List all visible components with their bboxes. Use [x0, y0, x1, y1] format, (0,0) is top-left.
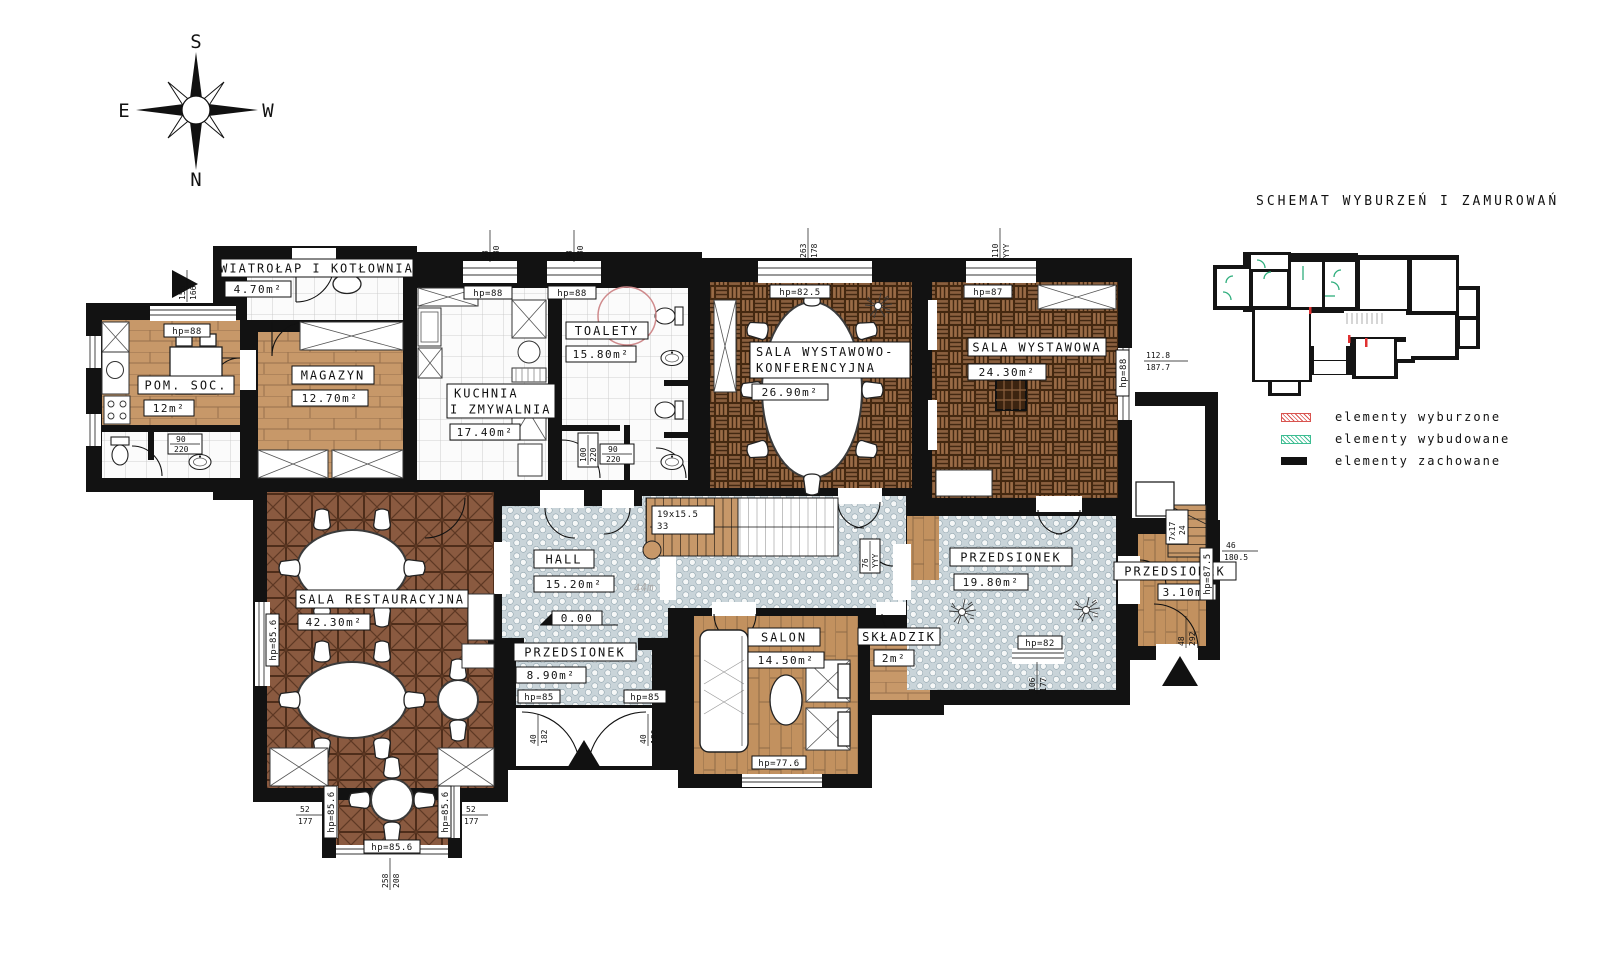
- room-name: SALA RESTAURACYJNA: [299, 593, 465, 607]
- dim-label: 76YYY: [860, 539, 880, 573]
- wc-icon: [655, 401, 683, 419]
- svg-text:180: 180: [492, 245, 501, 260]
- hp-label: hp=85: [630, 693, 660, 703]
- hp-label: hp=88: [1119, 358, 1129, 388]
- svg-text:166: 166: [189, 285, 198, 300]
- hp-label: hp=88: [473, 289, 503, 299]
- svg-text:100: 100: [579, 447, 588, 462]
- sink-icon: [189, 455, 211, 470]
- mini-plan: [1213, 252, 1480, 396]
- svg-text:208: 208: [392, 873, 401, 888]
- room-area: 26.90m²: [762, 386, 819, 399]
- handwritten-note: 44m: [633, 581, 654, 595]
- dim-label: 52177: [296, 805, 322, 826]
- room-name: WIATROŁAP I KOTŁOWNIA: [220, 262, 414, 276]
- level-value: 0.00: [561, 612, 594, 625]
- compass-center: [182, 96, 210, 124]
- svg-text:46: 46: [1226, 541, 1236, 550]
- room-area: 14.50m²: [758, 654, 815, 667]
- stairs-steps: 33: [657, 522, 669, 532]
- wc-icon: [655, 307, 683, 325]
- stairs-dim: 7x17: [1168, 522, 1177, 541]
- hp-label: hp=85.6: [327, 791, 337, 832]
- compass-letter-n: N: [190, 169, 201, 191]
- hp-label: hp=85.6: [269, 619, 279, 660]
- svg-text:263: 263: [799, 243, 808, 258]
- room-area: 19.80m²: [963, 576, 1020, 589]
- svg-text:178: 178: [810, 243, 819, 258]
- dim-label: 263178: [799, 228, 819, 260]
- room-name: SALA WYSTAWOWO-: [756, 345, 894, 359]
- room-name: TOALETY: [575, 324, 640, 338]
- dim-label: 110YYY: [991, 228, 1011, 260]
- svg-text:52: 52: [300, 805, 310, 814]
- svg-text:182: 182: [540, 729, 549, 744]
- room-name: SALA WYSTAWOWA: [972, 341, 1101, 355]
- dim-label: 90220: [168, 434, 202, 454]
- svg-text:110: 110: [991, 243, 1000, 258]
- sink-icon: [661, 455, 683, 470]
- svg-text:98: 98: [481, 250, 490, 260]
- room-area: 42.30m²: [306, 616, 363, 629]
- room-area: 24.30m²: [979, 366, 1036, 379]
- kitchenette-icon: [102, 322, 130, 424]
- room-name: HALL: [546, 553, 583, 567]
- svg-text:220: 220: [174, 445, 189, 454]
- dim-label: 100220: [578, 433, 598, 467]
- room-name: I ZMYWALNIA: [450, 403, 551, 417]
- room-area: 12.70m²: [302, 392, 359, 405]
- svg-text:220: 220: [606, 455, 621, 464]
- svg-text:177: 177: [464, 817, 479, 826]
- room-name: SALON: [761, 631, 807, 645]
- svg-text:156: 156: [178, 285, 187, 300]
- room-name: PRZEDSIONEK: [960, 551, 1061, 565]
- hp-label: hp=82.5: [779, 288, 820, 298]
- svg-text:52: 52: [466, 805, 476, 814]
- svg-text:180.5: 180.5: [1224, 553, 1248, 562]
- compass-letter-w: W: [262, 100, 274, 122]
- stairs-label: 7x17 24: [1166, 510, 1188, 544]
- room-name: PRZEDSIONEK: [524, 646, 625, 660]
- svg-text:180: 180: [576, 245, 585, 260]
- svg-text:76: 76: [861, 558, 870, 568]
- svg-text:106: 106: [1028, 677, 1037, 692]
- svg-text:YYY: YYY: [871, 553, 880, 568]
- svg-text:40: 40: [529, 734, 538, 744]
- room-name: KUCHNIA: [454, 387, 519, 401]
- sofa-icon: [700, 630, 748, 752]
- hp-label: hp=85: [524, 693, 554, 703]
- stairs-dim: 19x15.5: [657, 510, 698, 520]
- hp-label: hp=85.6: [441, 791, 451, 832]
- svg-text:YYY: YYY: [1002, 243, 1011, 258]
- svg-text:177: 177: [1039, 677, 1048, 692]
- room-area: 4.70m²: [234, 283, 283, 296]
- svg-text:292: 292: [1188, 631, 1197, 646]
- dim-label: 112.8187.7: [1144, 351, 1188, 372]
- sink-icon: [661, 351, 683, 366]
- room-name: KONFERENCYJNA: [756, 361, 876, 375]
- svg-text:90: 90: [608, 445, 618, 454]
- svg-text:112.8: 112.8: [1146, 351, 1170, 360]
- room-name: MAGAZYN: [301, 369, 366, 383]
- hp-label: hp=77.6: [758, 759, 799, 769]
- armchair-icon: [806, 708, 850, 750]
- hp-label: hp=85.6: [371, 843, 412, 853]
- compass-rose: S N E W: [118, 31, 274, 191]
- room-area: 8.90m²: [527, 669, 576, 682]
- svg-text:98: 98: [565, 250, 574, 260]
- dim-label: 90220: [600, 444, 634, 464]
- hp-label: hp=88: [557, 289, 587, 299]
- room-area: 12m²: [153, 402, 186, 415]
- room-area: 2m²: [882, 652, 906, 665]
- entrance-arrow-icon: [1162, 656, 1198, 686]
- svg-text:187.7: 187.7: [1146, 363, 1170, 372]
- wc-icon: [111, 437, 129, 465]
- compass-letter-s: S: [190, 31, 201, 53]
- stove-icon: [104, 396, 130, 424]
- svg-text:180: 180: [650, 729, 659, 744]
- room-area: 17.40m²: [457, 426, 514, 439]
- coffee-table-icon: [770, 675, 802, 725]
- przedsionek-wood-patch: [907, 516, 939, 580]
- compass-letter-e: E: [118, 100, 129, 122]
- svg-text:258: 258: [381, 873, 390, 888]
- floor-plan-sheet: SCHEMAT WYBURZEŃ I ZAMUROWAŃ elementy wy…: [0, 0, 1600, 977]
- svg-text:40: 40: [639, 734, 648, 744]
- hp-label: hp=82: [1025, 639, 1055, 649]
- hp-label: hp=88: [172, 327, 202, 337]
- dim-label: 46180.5: [1222, 541, 1258, 562]
- svg-text:48: 48: [1177, 636, 1186, 646]
- stairs-steps: 24: [1178, 525, 1187, 535]
- hp-label: hp=87.5: [1203, 553, 1213, 594]
- dim-label: 258208: [381, 858, 401, 890]
- svg-text:90: 90: [176, 435, 186, 444]
- hp-label: hp=87: [973, 288, 1003, 298]
- room-name: SKŁADZIK: [862, 630, 936, 644]
- stairs-label: 19x15.5 33: [652, 506, 714, 534]
- dim-label: 52177: [462, 805, 488, 826]
- main-plan: S N E W: [0, 0, 1600, 977]
- svg-text:220: 220: [589, 447, 598, 462]
- room-area: 15.20m²: [546, 578, 603, 591]
- room-name: POM. SOC.: [144, 379, 227, 393]
- room-area: 15.80m²: [573, 348, 630, 361]
- svg-text:177: 177: [298, 817, 313, 826]
